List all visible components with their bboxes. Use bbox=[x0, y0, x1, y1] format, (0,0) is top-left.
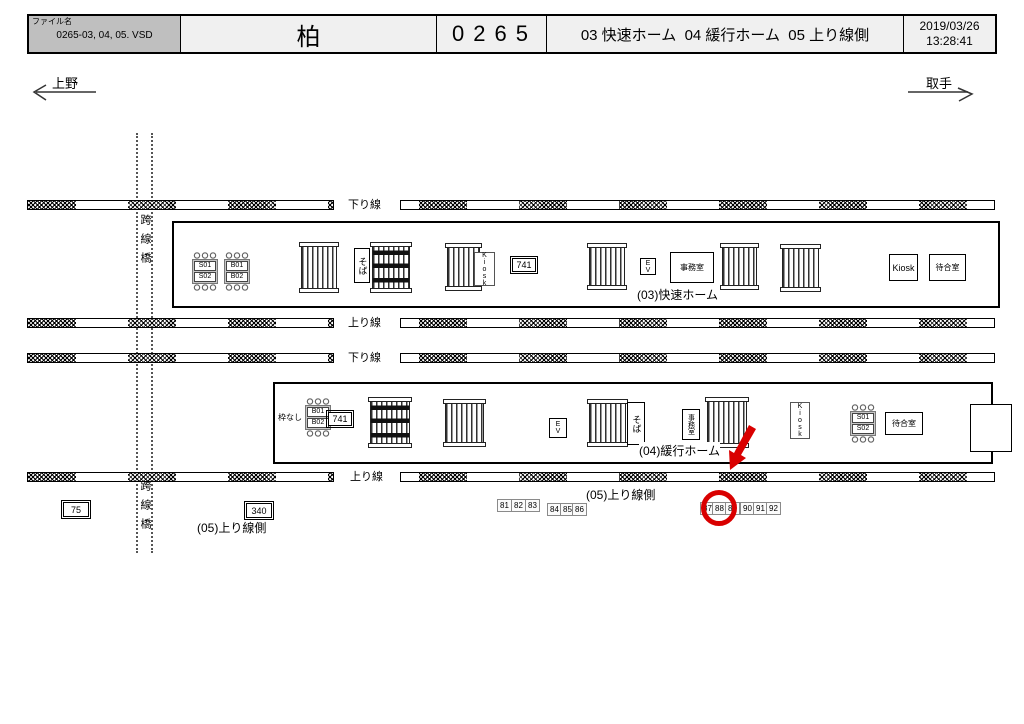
stack-dots-icon bbox=[306, 398, 330, 405]
kiosk: Kiosk bbox=[889, 254, 918, 281]
platform-04-label: (04)緩行ホーム bbox=[639, 442, 720, 459]
platform-03-label: (03)快速ホーム bbox=[637, 286, 718, 303]
sign-s01: S01 bbox=[194, 261, 216, 271]
stairs-icon bbox=[722, 247, 757, 286]
file-name-value: 0265-03, 04, 05. VSD bbox=[32, 30, 177, 41]
stack-dots-icon bbox=[193, 252, 217, 259]
stairs-icon bbox=[301, 246, 337, 289]
track-up-2-left bbox=[27, 472, 334, 482]
office-room: 事務室 bbox=[682, 409, 700, 440]
station-number: 0265 bbox=[436, 16, 546, 52]
elevator: EV bbox=[549, 418, 567, 438]
sign-stack-s01-s02: S01 S02 bbox=[850, 404, 876, 443]
bridge-label-bottom: 跨線橋 bbox=[137, 480, 153, 537]
kiosk-small: Kiosk bbox=[790, 402, 810, 439]
stack-dots-icon bbox=[193, 284, 217, 291]
sign-82: 82 bbox=[511, 499, 526, 512]
date-value: 2019/03/26 bbox=[919, 19, 979, 34]
stack-body: S01 S02 bbox=[192, 259, 218, 284]
sign-s01: S01 bbox=[852, 413, 874, 423]
left-arrow-icon bbox=[30, 84, 102, 102]
stack-dots-icon bbox=[225, 252, 249, 259]
station-diagram-page: ファイル名 0265-03, 04, 05. VSD 柏 0265 03 快速ホ… bbox=[0, 0, 1024, 724]
sign-stack-b01-b02: B01 B02 bbox=[224, 252, 250, 291]
stairs-icon bbox=[589, 403, 626, 443]
track-down-1-left bbox=[27, 200, 334, 210]
stairs-icon bbox=[782, 248, 819, 288]
file-name-label: ファイル名 bbox=[32, 17, 177, 26]
frame-note: 枠なし bbox=[278, 412, 302, 423]
sign-83: 83 bbox=[525, 499, 540, 512]
time-value: 13:28:41 bbox=[926, 34, 973, 49]
sign-75: 75 bbox=[63, 502, 89, 517]
stack-dots-icon bbox=[225, 284, 249, 291]
stack-body: B01 B02 bbox=[224, 259, 250, 284]
sign-b01: B01 bbox=[307, 407, 329, 417]
track-up-1-right bbox=[400, 318, 995, 328]
area-05-label-left: (05)上り線側 bbox=[197, 519, 266, 536]
sign-b01: B01 bbox=[226, 261, 248, 271]
timestamp-cell: 2019/03/26 13:28:41 bbox=[903, 16, 995, 52]
track-up-2-right bbox=[400, 472, 995, 482]
sign-741: 741 bbox=[512, 258, 536, 272]
bridge-label-top: 跨線橋 bbox=[137, 214, 153, 271]
track-down-2-left bbox=[27, 353, 334, 363]
sign-86: 86 bbox=[572, 503, 587, 516]
track-down-2-right bbox=[400, 353, 995, 363]
highlight-circle bbox=[701, 490, 737, 526]
stack-dots-icon bbox=[306, 430, 330, 437]
title-bar: ファイル名 0265-03, 04, 05. VSD 柏 0265 03 快速ホ… bbox=[27, 14, 997, 54]
office-room: 事務室 bbox=[670, 252, 714, 283]
escalator-icon bbox=[372, 246, 410, 289]
sign-b02: B02 bbox=[226, 272, 248, 282]
soba-shop: そば bbox=[354, 248, 370, 283]
kiosk-small: Kiosk bbox=[474, 252, 495, 286]
area-05-label-right: (05)上り線側 bbox=[586, 486, 655, 503]
sign-92: 92 bbox=[766, 502, 781, 515]
track-up-1-left bbox=[27, 318, 334, 328]
soba-shop: そば bbox=[627, 402, 645, 445]
highlight-arrow-icon bbox=[722, 424, 762, 474]
sign-81: 81 bbox=[497, 499, 512, 512]
track-down-1-label: 下り線 bbox=[348, 199, 381, 211]
track-up-1-label: 上り線 bbox=[348, 317, 381, 329]
stack-body: S01 S02 bbox=[850, 411, 876, 436]
escalator-icon bbox=[370, 401, 410, 444]
stairs-icon bbox=[445, 403, 484, 443]
track-down-1-right bbox=[400, 200, 995, 210]
sign-s02: S02 bbox=[194, 272, 216, 282]
track-down-2-label: 下り線 bbox=[348, 352, 381, 364]
sign-340: 340 bbox=[246, 503, 272, 518]
stairs-icon bbox=[589, 247, 625, 286]
waiting-room: 待合室 bbox=[885, 412, 923, 435]
file-name-cell: ファイル名 0265-03, 04, 05. VSD bbox=[29, 16, 180, 52]
waiting-room: 待合室 bbox=[929, 254, 966, 281]
sign-stack-s01-s02: S01 S02 bbox=[192, 252, 218, 291]
elevator: EV bbox=[640, 258, 656, 275]
track-up-2-label: 上り線 bbox=[350, 471, 383, 483]
sign-s02: S02 bbox=[852, 424, 874, 434]
platform-list: 03 快速ホーム 04 緩行ホーム 05 上り線側 bbox=[546, 16, 903, 52]
stack-dots-icon bbox=[851, 436, 875, 443]
station-name: 柏 bbox=[180, 16, 436, 52]
end-structure bbox=[970, 404, 1012, 452]
right-arrow-icon bbox=[904, 84, 976, 102]
platform-04: 枠なし B01 B02 741 EV そば 事務室 (04)緩行ホーム Kios… bbox=[273, 382, 993, 464]
sign-741: 741 bbox=[328, 412, 352, 426]
sign-b02: B02 bbox=[307, 418, 329, 428]
stack-dots-icon bbox=[851, 404, 875, 411]
platform-03: S01 S02 B01 B02 そば Kiosk 741 EV 事務室 Kios… bbox=[172, 221, 1000, 308]
